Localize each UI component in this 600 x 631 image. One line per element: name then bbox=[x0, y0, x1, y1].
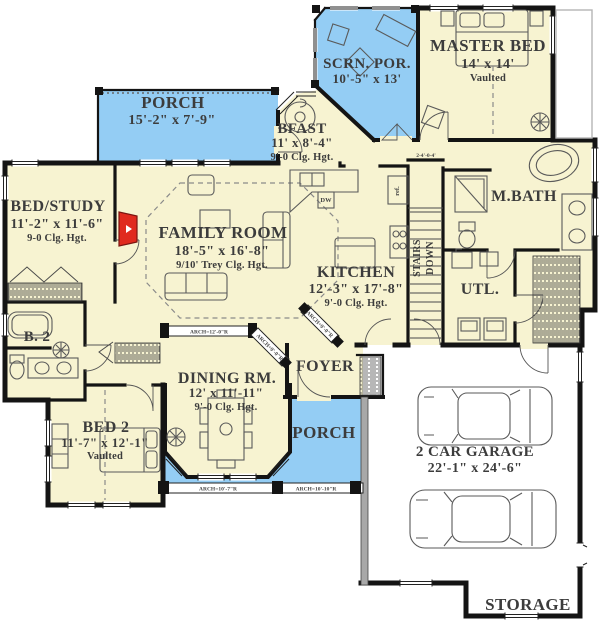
plant-bed2 bbox=[53, 342, 69, 358]
label-dining-dims: 12' x 11'-11" bbox=[189, 385, 264, 400]
label-storage: STORAGE bbox=[485, 595, 571, 614]
label-porch-top-dims: 15'-2" x 7'-9" bbox=[128, 113, 215, 128]
plant-master bbox=[531, 113, 549, 131]
label-porch-top: PORCH bbox=[141, 93, 204, 112]
label-utl: UTL. bbox=[461, 281, 500, 298]
label-foyer: FOYER bbox=[296, 358, 354, 375]
label-arch-hall: ARCH=12'-0"R bbox=[190, 330, 229, 336]
label-family: FAMILY ROOM bbox=[159, 223, 288, 242]
label-stairs-dim: 2-4'-0-4' bbox=[416, 153, 436, 159]
floor-plan-drawing: PORCH 15'-2" x 7'-9" SCRN. POR. 10'-5" x… bbox=[0, 0, 600, 631]
label-garage-dims: 22'-1" x 24'-6" bbox=[428, 461, 523, 476]
eave-outline bbox=[556, 10, 592, 138]
label-bed-study-note: 9-0 Clg. Hgt. bbox=[27, 233, 87, 244]
label-scrn-por: SCRN. POR. bbox=[323, 56, 411, 72]
label-kitchen-dims: 12'-3" x 17'-8" bbox=[309, 282, 404, 297]
label-master-note: Vaulted bbox=[470, 73, 506, 84]
label-scrn-por-dims: 10'-5" x 13' bbox=[332, 71, 401, 86]
label-bfast-note: 9'-0 Clg. Hgt. bbox=[271, 152, 334, 163]
label-family-dims: 18'-5" x 16'-8" bbox=[175, 244, 270, 259]
label-kitchen-note: 9'-0 Clg. Hgt. bbox=[325, 298, 388, 309]
label-bed2: BED 2 bbox=[83, 419, 130, 436]
label-bed2-dims: 11'-7" x 12'-1" bbox=[61, 435, 149, 450]
label-family-note: 9/10' Trey Clg. Hgt. bbox=[176, 260, 268, 271]
plant-dining bbox=[167, 428, 185, 446]
label-bfast-dims: 11' x 8'-4" bbox=[271, 135, 332, 150]
label-bed-study: BED/STUDY bbox=[10, 198, 105, 215]
label-garage: 2 CAR GARAGE bbox=[416, 444, 534, 460]
label-stairs-2: DOWN bbox=[425, 241, 436, 275]
label-dining-note: 9'-0 Clg. Hgt. bbox=[195, 402, 258, 413]
label-kitchen: KITCHEN bbox=[317, 264, 395, 281]
label-bed2-note: Vaulted bbox=[87, 451, 123, 462]
label-stairs-1: STAIRS bbox=[412, 239, 423, 277]
label-b2: B. 2 bbox=[24, 329, 51, 345]
label-porch-arch-1: ARCH=10'-7"R bbox=[199, 487, 238, 493]
label-master: MASTER BED bbox=[430, 36, 546, 55]
label-porch-bottom: PORCH bbox=[292, 423, 355, 442]
label-ref: ref. bbox=[394, 186, 401, 196]
floor-plan-page: PORCH 15'-2" x 7'-9" SCRN. POR. 10'-5" x… bbox=[0, 0, 600, 631]
label-bed-study-dims: 11'-2" x 11'-6" bbox=[10, 217, 103, 232]
label-porch-arch-2: ARCH=10'-10"R bbox=[296, 487, 338, 493]
label-dw: DW bbox=[320, 197, 332, 204]
label-mbath: M.BATH bbox=[491, 188, 557, 205]
label-master-dims: 14' x 14' bbox=[461, 57, 514, 72]
